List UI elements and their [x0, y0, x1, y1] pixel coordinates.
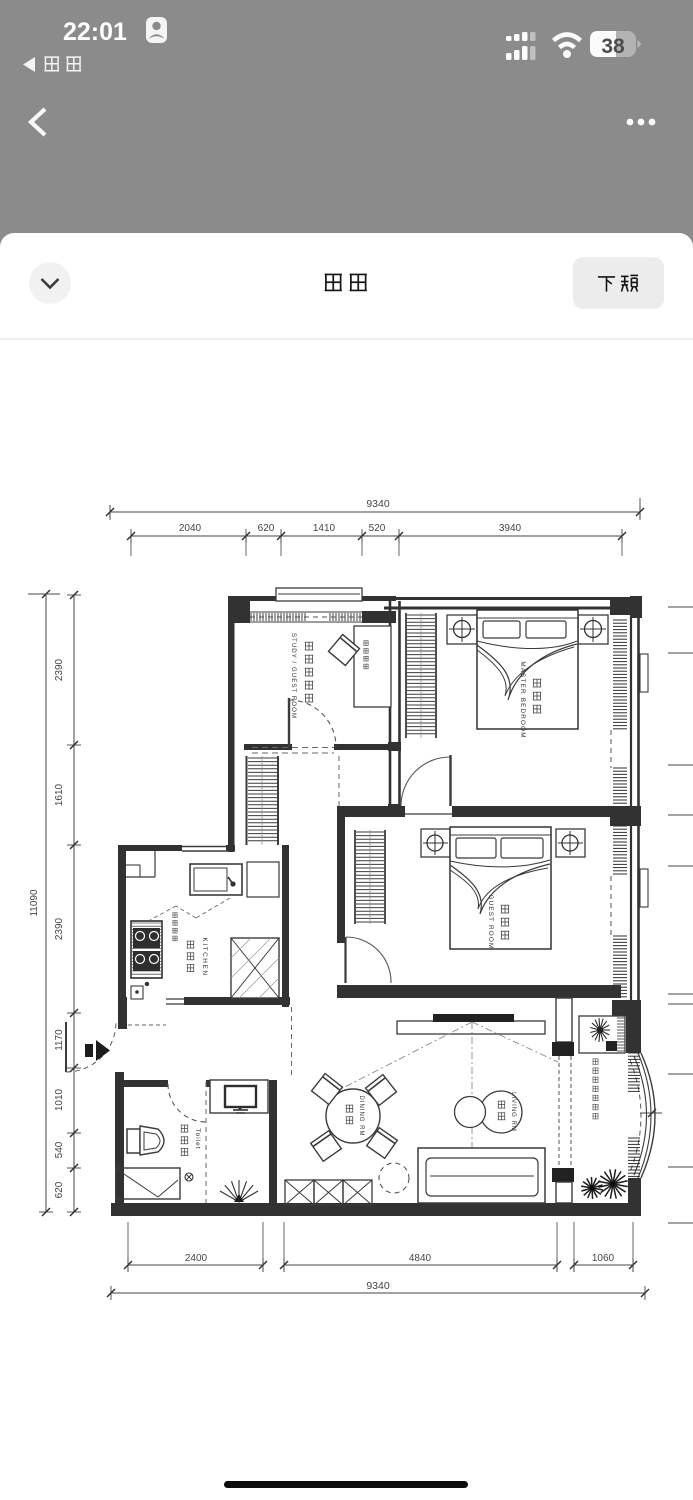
svg-text:2390: 2390 — [54, 917, 65, 940]
svg-text:1170: 1170 — [54, 1029, 65, 1051]
svg-text:2390: 2390 — [54, 658, 65, 681]
svg-text:520: 520 — [369, 523, 386, 534]
svg-text:620: 620 — [54, 1181, 65, 1198]
svg-text:KITCHEN: KITCHEN — [201, 937, 208, 976]
svg-text:1010: 1010 — [54, 1088, 65, 1111]
svg-text:4840: 4840 — [409, 1253, 432, 1264]
svg-text:9340: 9340 — [366, 1280, 390, 1292]
svg-text:620: 620 — [258, 523, 275, 534]
svg-text:1410: 1410 — [313, 523, 336, 534]
svg-text:1060: 1060 — [592, 1253, 615, 1264]
svg-text:GUEST ROOM: GUEST ROOM — [487, 895, 494, 950]
svg-text:LIVING RM: LIVING RM — [510, 1092, 516, 1132]
svg-text:1610: 1610 — [54, 783, 65, 806]
svg-text:2400: 2400 — [185, 1253, 208, 1264]
svg-text:STUDY / GUEST ROOM: STUDY / GUEST ROOM — [290, 633, 297, 719]
svg-text:2040: 2040 — [179, 523, 202, 534]
svg-text:540: 540 — [54, 1141, 65, 1158]
svg-text:3940: 3940 — [499, 523, 522, 534]
svg-text:DINING RM: DINING RM — [358, 1096, 364, 1137]
svg-text:9340: 9340 — [366, 498, 390, 510]
svg-text:MASTER BEDROOM: MASTER BEDROOM — [519, 661, 526, 738]
svg-text:Toilet: Toilet — [194, 1128, 201, 1149]
svg-text:11090: 11090 — [29, 889, 40, 917]
